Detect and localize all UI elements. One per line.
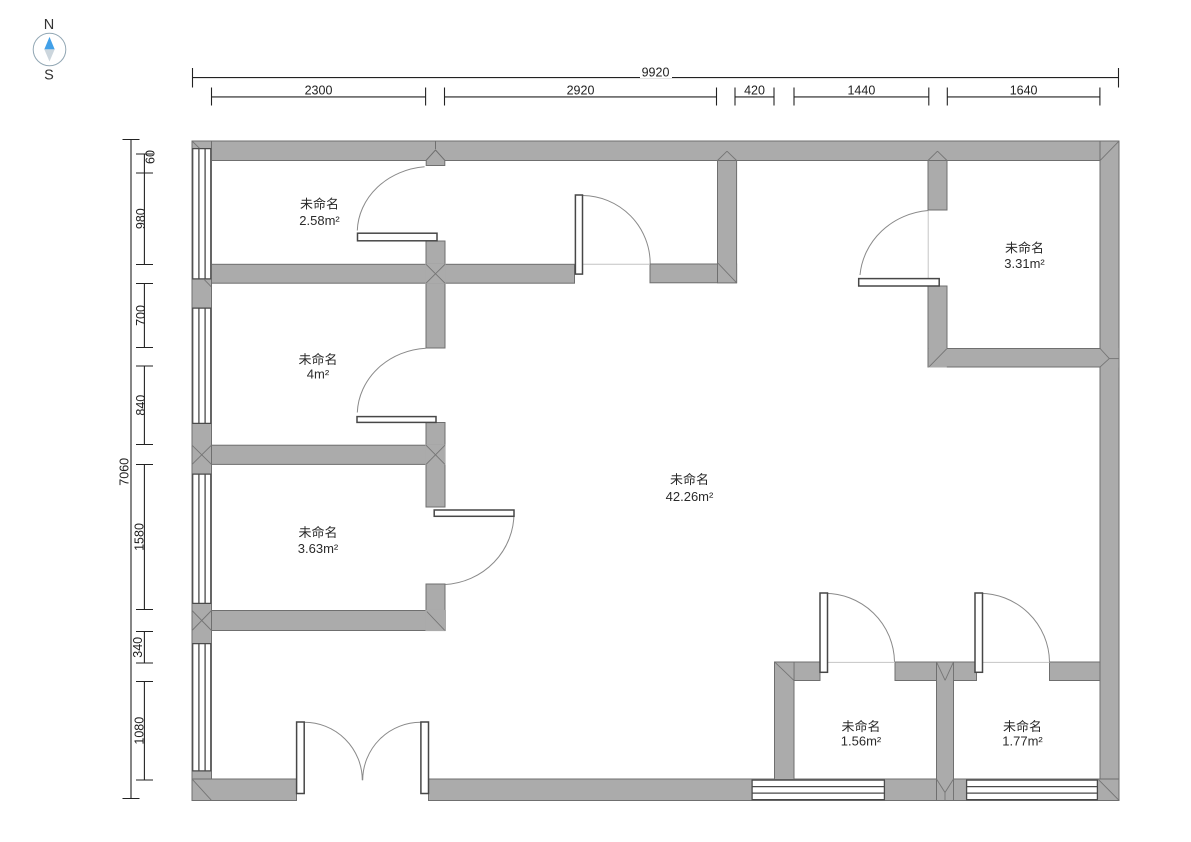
svg-text:1640: 1640 — [1010, 84, 1038, 98]
svg-text:3.63m²: 3.63m² — [298, 541, 339, 556]
svg-text:60: 60 — [144, 150, 158, 164]
svg-text:42.26m²: 42.26m² — [666, 489, 714, 504]
svg-text:S: S — [44, 68, 54, 84]
svg-text:420: 420 — [744, 84, 765, 98]
svg-text:N: N — [44, 17, 54, 33]
svg-text:1080: 1080 — [133, 717, 147, 745]
svg-text:2.58m²: 2.58m² — [299, 213, 340, 228]
svg-text:1.77m²: 1.77m² — [1002, 734, 1043, 749]
svg-text:9920: 9920 — [642, 66, 670, 80]
svg-text:3.31m²: 3.31m² — [1004, 256, 1045, 271]
svg-text:1580: 1580 — [133, 523, 147, 551]
svg-text:7060: 7060 — [118, 458, 132, 486]
svg-text:4m²: 4m² — [307, 367, 330, 382]
svg-text:2920: 2920 — [567, 84, 595, 98]
svg-text:2300: 2300 — [305, 84, 333, 98]
svg-text:1.56m²: 1.56m² — [841, 734, 882, 749]
svg-text:840: 840 — [134, 395, 148, 416]
svg-text:1440: 1440 — [847, 84, 875, 98]
svg-text:980: 980 — [134, 208, 148, 229]
svg-text:700: 700 — [134, 305, 148, 326]
svg-text:340: 340 — [131, 637, 145, 658]
